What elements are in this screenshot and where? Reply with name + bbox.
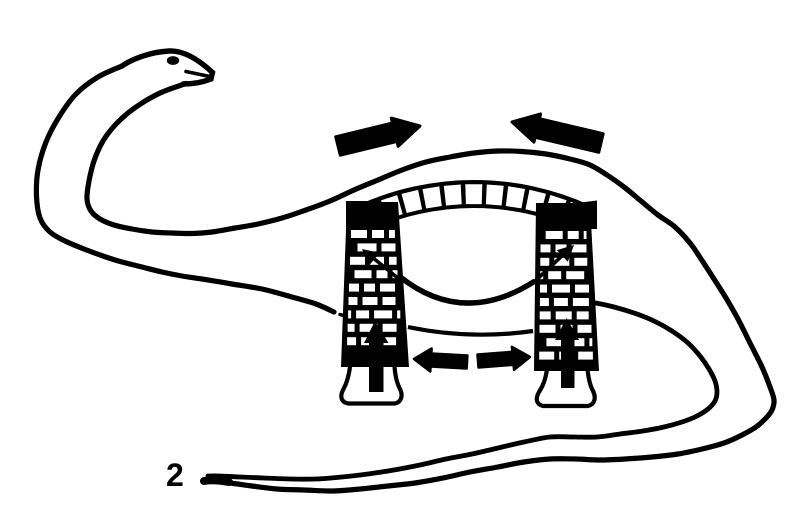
svg-text:2: 2 — [166, 457, 184, 493]
